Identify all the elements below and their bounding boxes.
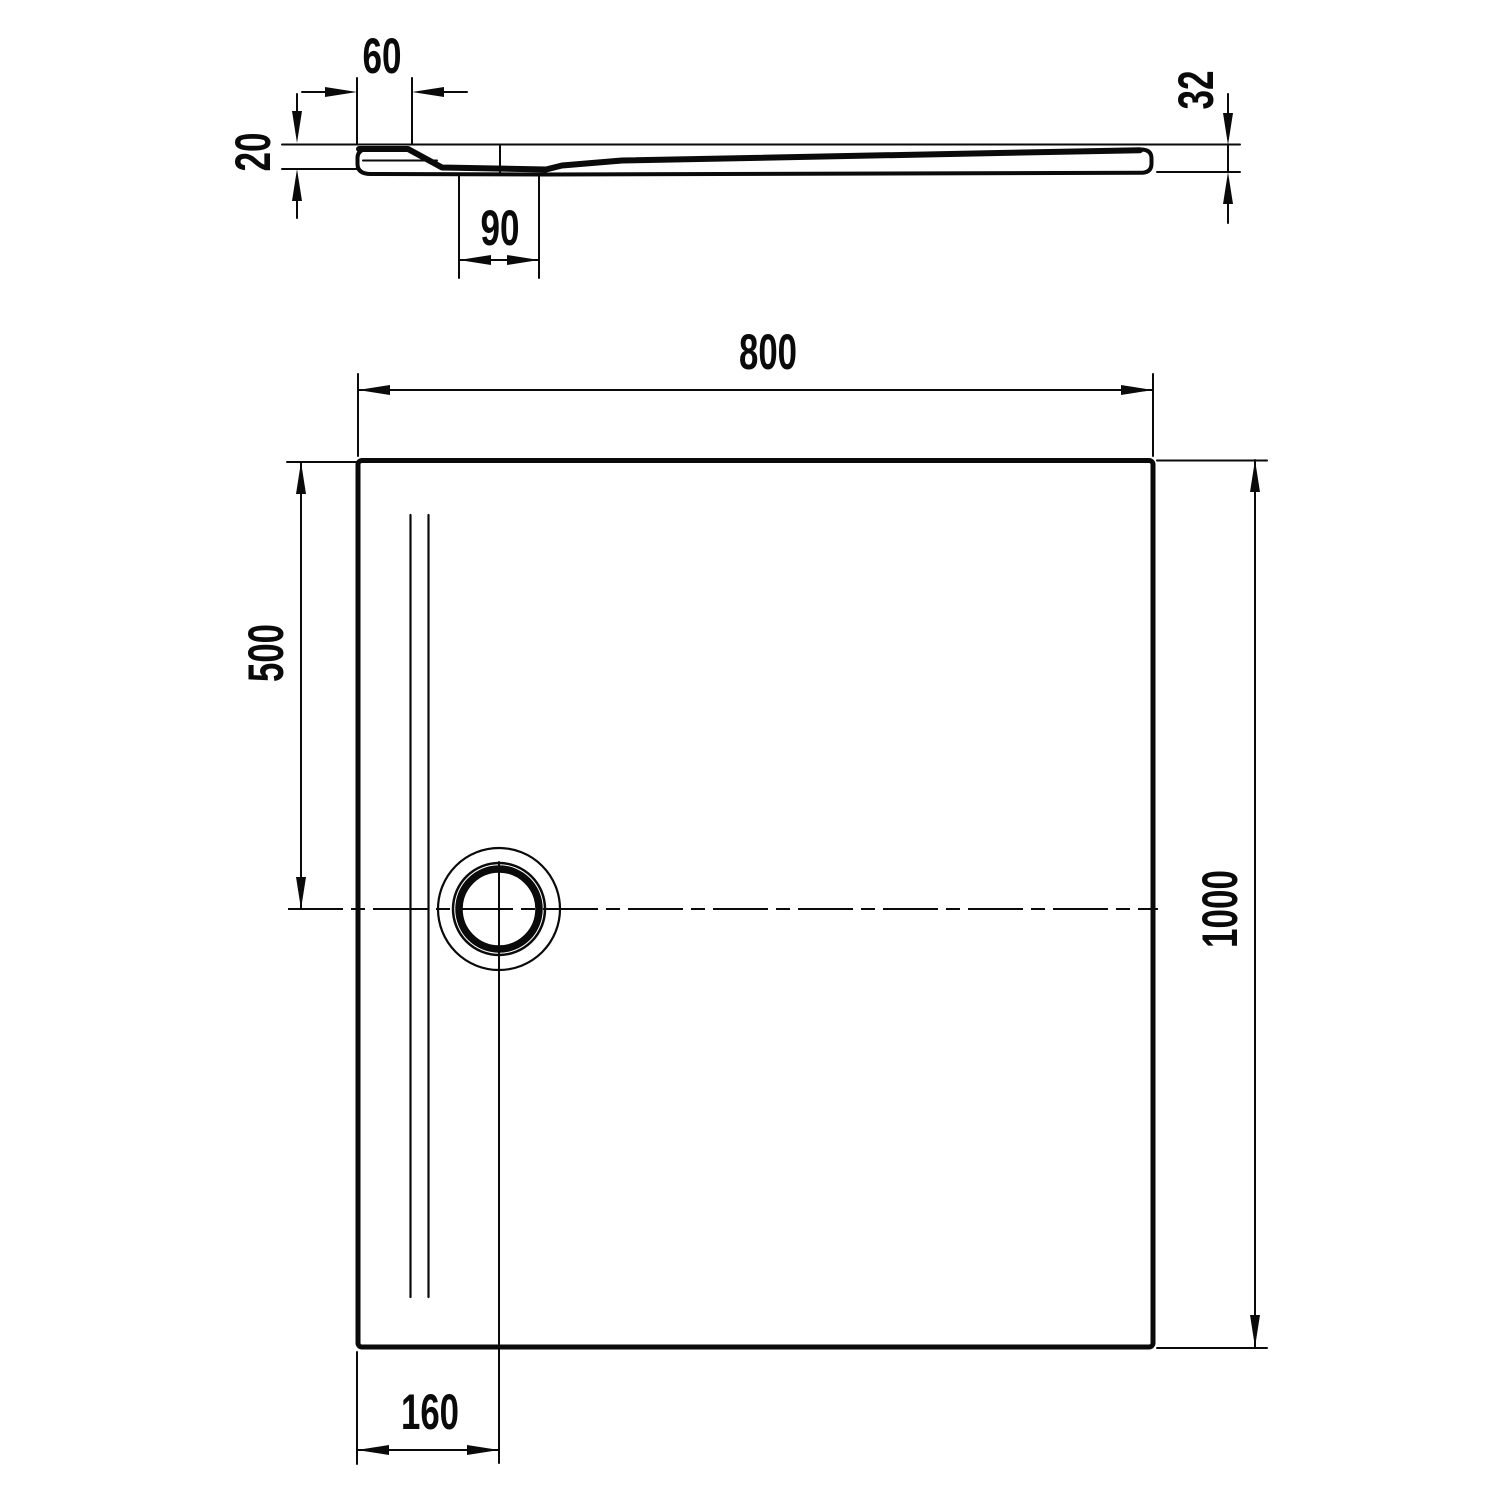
arrowhead — [412, 87, 444, 97]
dim-drain-from-top: 500 — [238, 462, 356, 909]
dim-width: 800 — [358, 324, 1153, 456]
dim-label-drain-from-top: 500 — [238, 624, 294, 682]
section-view: 60 20 90 — [225, 28, 1240, 278]
dim-label-end-thickness: 32 — [1168, 71, 1224, 110]
arrowhead — [1121, 385, 1153, 395]
shower-tray-dimension-drawing: 60 20 90 — [0, 0, 1500, 1500]
dim-label-width: 800 — [739, 324, 797, 380]
dim-rim-width: 60 — [302, 28, 467, 144]
arrowhead — [1250, 1315, 1260, 1347]
arrowhead — [1250, 460, 1260, 492]
arrowhead — [296, 877, 306, 909]
arrowhead — [507, 255, 539, 265]
dim-drain-from-left: 160 — [357, 1352, 499, 1464]
dim-label-drain-from-left: 160 — [401, 1384, 459, 1440]
arrowhead — [296, 462, 306, 494]
arrowhead — [1223, 172, 1233, 204]
dim-label-channel-width: 90 — [481, 200, 520, 256]
dim-label-length: 1000 — [1192, 870, 1248, 948]
dim-label-edge-thickness: 20 — [225, 133, 281, 172]
tray-plan-outline — [358, 461, 1153, 1348]
dim-label-rim-width: 60 — [363, 28, 402, 84]
arrowhead — [357, 1445, 389, 1455]
technical-drawing-page: 60 20 90 — [0, 0, 1500, 1500]
arrowhead — [325, 87, 357, 97]
tray-profile-surface — [359, 149, 1140, 170]
plan-view: 800 500 1000 — [238, 324, 1267, 1464]
arrowhead — [459, 255, 491, 265]
arrowhead — [467, 1445, 499, 1455]
dim-length: 1000 — [1157, 460, 1267, 1348]
dim-end-thickness: 32 — [1157, 71, 1240, 224]
arrowhead — [292, 169, 302, 201]
dim-edge-thickness: 20 — [225, 94, 357, 218]
dim-channel-width: 90 — [459, 176, 539, 278]
arrowhead — [292, 111, 302, 143]
arrowhead — [358, 385, 390, 395]
arrowhead — [1223, 113, 1233, 145]
